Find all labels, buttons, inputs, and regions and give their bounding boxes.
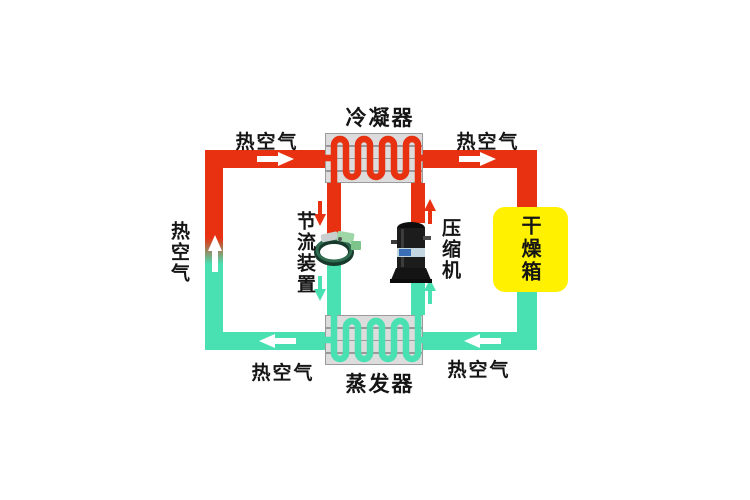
heat-pump-dryer-diagram: 干燥箱 冷凝器 蒸发器 节流装置 压缩机 热空气 热空气 热空气 热空气 热空气 — [0, 0, 750, 500]
airflow-arrow-up-icon — [207, 234, 223, 272]
evaporator-label: 蒸发器 — [330, 368, 430, 398]
hot-air-label-bottom-right: 热空气 — [429, 355, 529, 382]
compressor-label: 压缩机 — [437, 218, 464, 281]
airflow-arrow-left-icon — [258, 333, 296, 349]
condenser-coil-icon — [325, 133, 423, 183]
airflow-arrow-left-icon — [463, 333, 501, 349]
refrigerant-pipe-compressor-to-condenser — [411, 183, 425, 223]
hot-air-label-left: 热空气 — [166, 221, 193, 284]
evaporator-coil-icon — [325, 315, 423, 365]
condenser-label: 冷凝器 — [330, 102, 430, 132]
refrigerant-pipe-throttle-to-evaporator — [327, 263, 341, 315]
pipe-hot-air-right-upper — [517, 150, 537, 212]
drying-box: 干燥箱 — [493, 207, 568, 292]
drying-box-label: 干燥箱 — [516, 215, 545, 284]
throttle-device-label: 节流装置 — [292, 211, 319, 295]
hot-air-label-bottom-left: 热空气 — [233, 358, 333, 385]
compressor-icon — [390, 218, 432, 284]
hot-air-label-top-right: 热空气 — [438, 127, 538, 154]
hot-air-label-top-left: 热空气 — [217, 127, 317, 154]
